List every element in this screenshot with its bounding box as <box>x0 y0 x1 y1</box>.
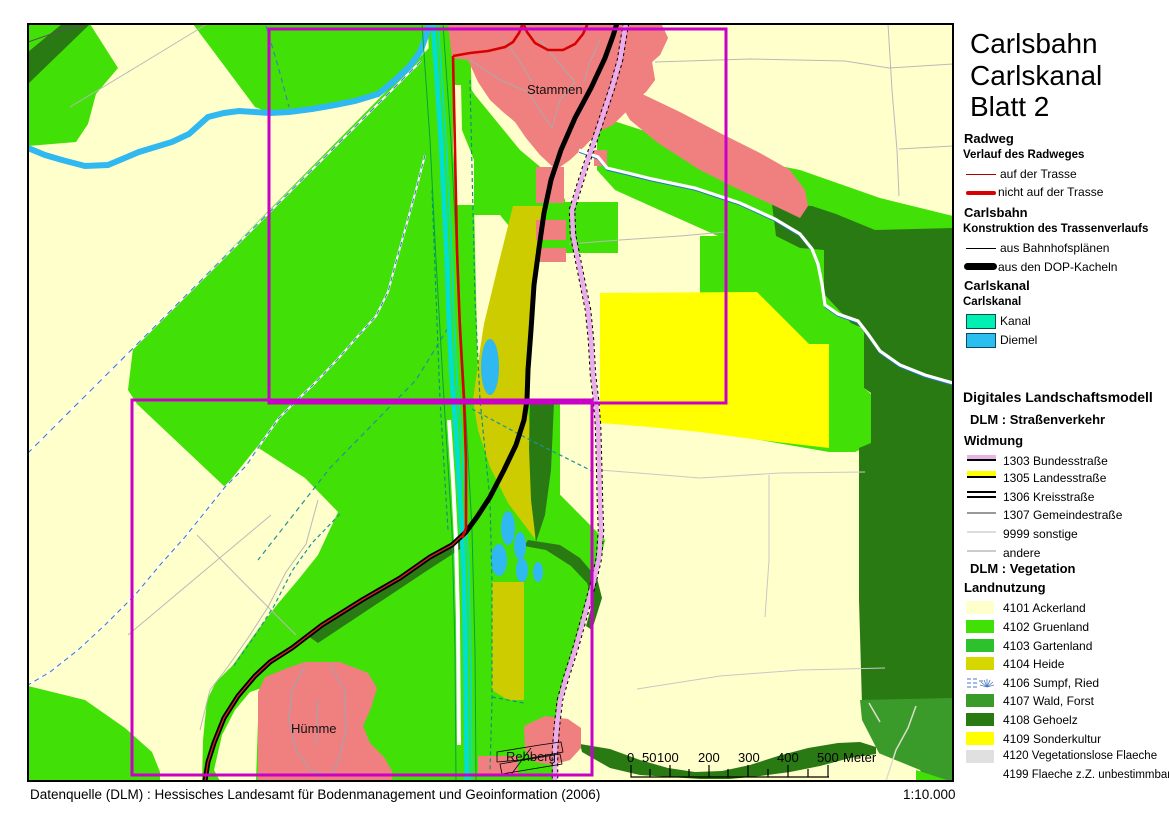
svg-text:300: 300 <box>738 750 760 765</box>
svg-text:400: 400 <box>777 750 799 765</box>
svg-text:100: 100 <box>657 750 679 765</box>
svg-text:Stammen: Stammen <box>527 82 583 97</box>
svg-text:Rehberg: Rehberg <box>506 749 556 764</box>
svg-text:500: 500 <box>817 750 839 765</box>
svg-text:200: 200 <box>698 750 720 765</box>
svg-text:Meter: Meter <box>843 750 877 765</box>
svg-text:Hümme: Hümme <box>291 721 337 736</box>
svg-text:50: 50 <box>642 750 656 765</box>
svg-text:0: 0 <box>627 750 634 765</box>
